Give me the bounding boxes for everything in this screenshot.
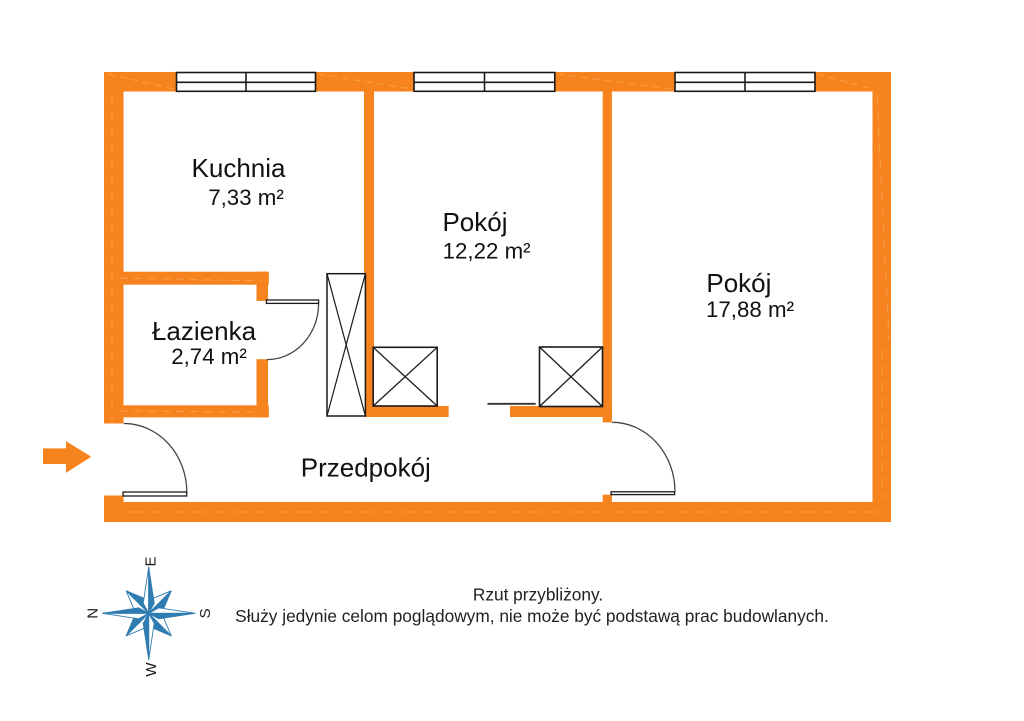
svg-text:Przedpokój: Przedpokój bbox=[301, 453, 431, 483]
svg-text:17,88 m²: 17,88 m² bbox=[706, 297, 794, 322]
svg-text:S: S bbox=[197, 608, 214, 618]
svg-text:Służy jedynie celom poglądowym: Służy jedynie celom poglądowym, nie może… bbox=[235, 606, 829, 626]
svg-text:Rzut przybliżony.: Rzut przybliżony. bbox=[473, 585, 603, 605]
svg-text:Łazienka: Łazienka bbox=[152, 316, 257, 346]
svg-text:12,22 m²: 12,22 m² bbox=[443, 239, 531, 264]
svg-text:Kuchnia: Kuchnia bbox=[192, 153, 286, 183]
svg-text:7,33 m²: 7,33 m² bbox=[208, 185, 284, 210]
svg-text:2,74 m²: 2,74 m² bbox=[171, 344, 247, 369]
svg-text:W: W bbox=[143, 662, 160, 677]
svg-text:N: N bbox=[85, 608, 102, 619]
svg-text:Pokój: Pokój bbox=[442, 207, 507, 237]
svg-text:Pokój: Pokój bbox=[706, 268, 771, 298]
svg-text:E: E bbox=[143, 556, 160, 566]
